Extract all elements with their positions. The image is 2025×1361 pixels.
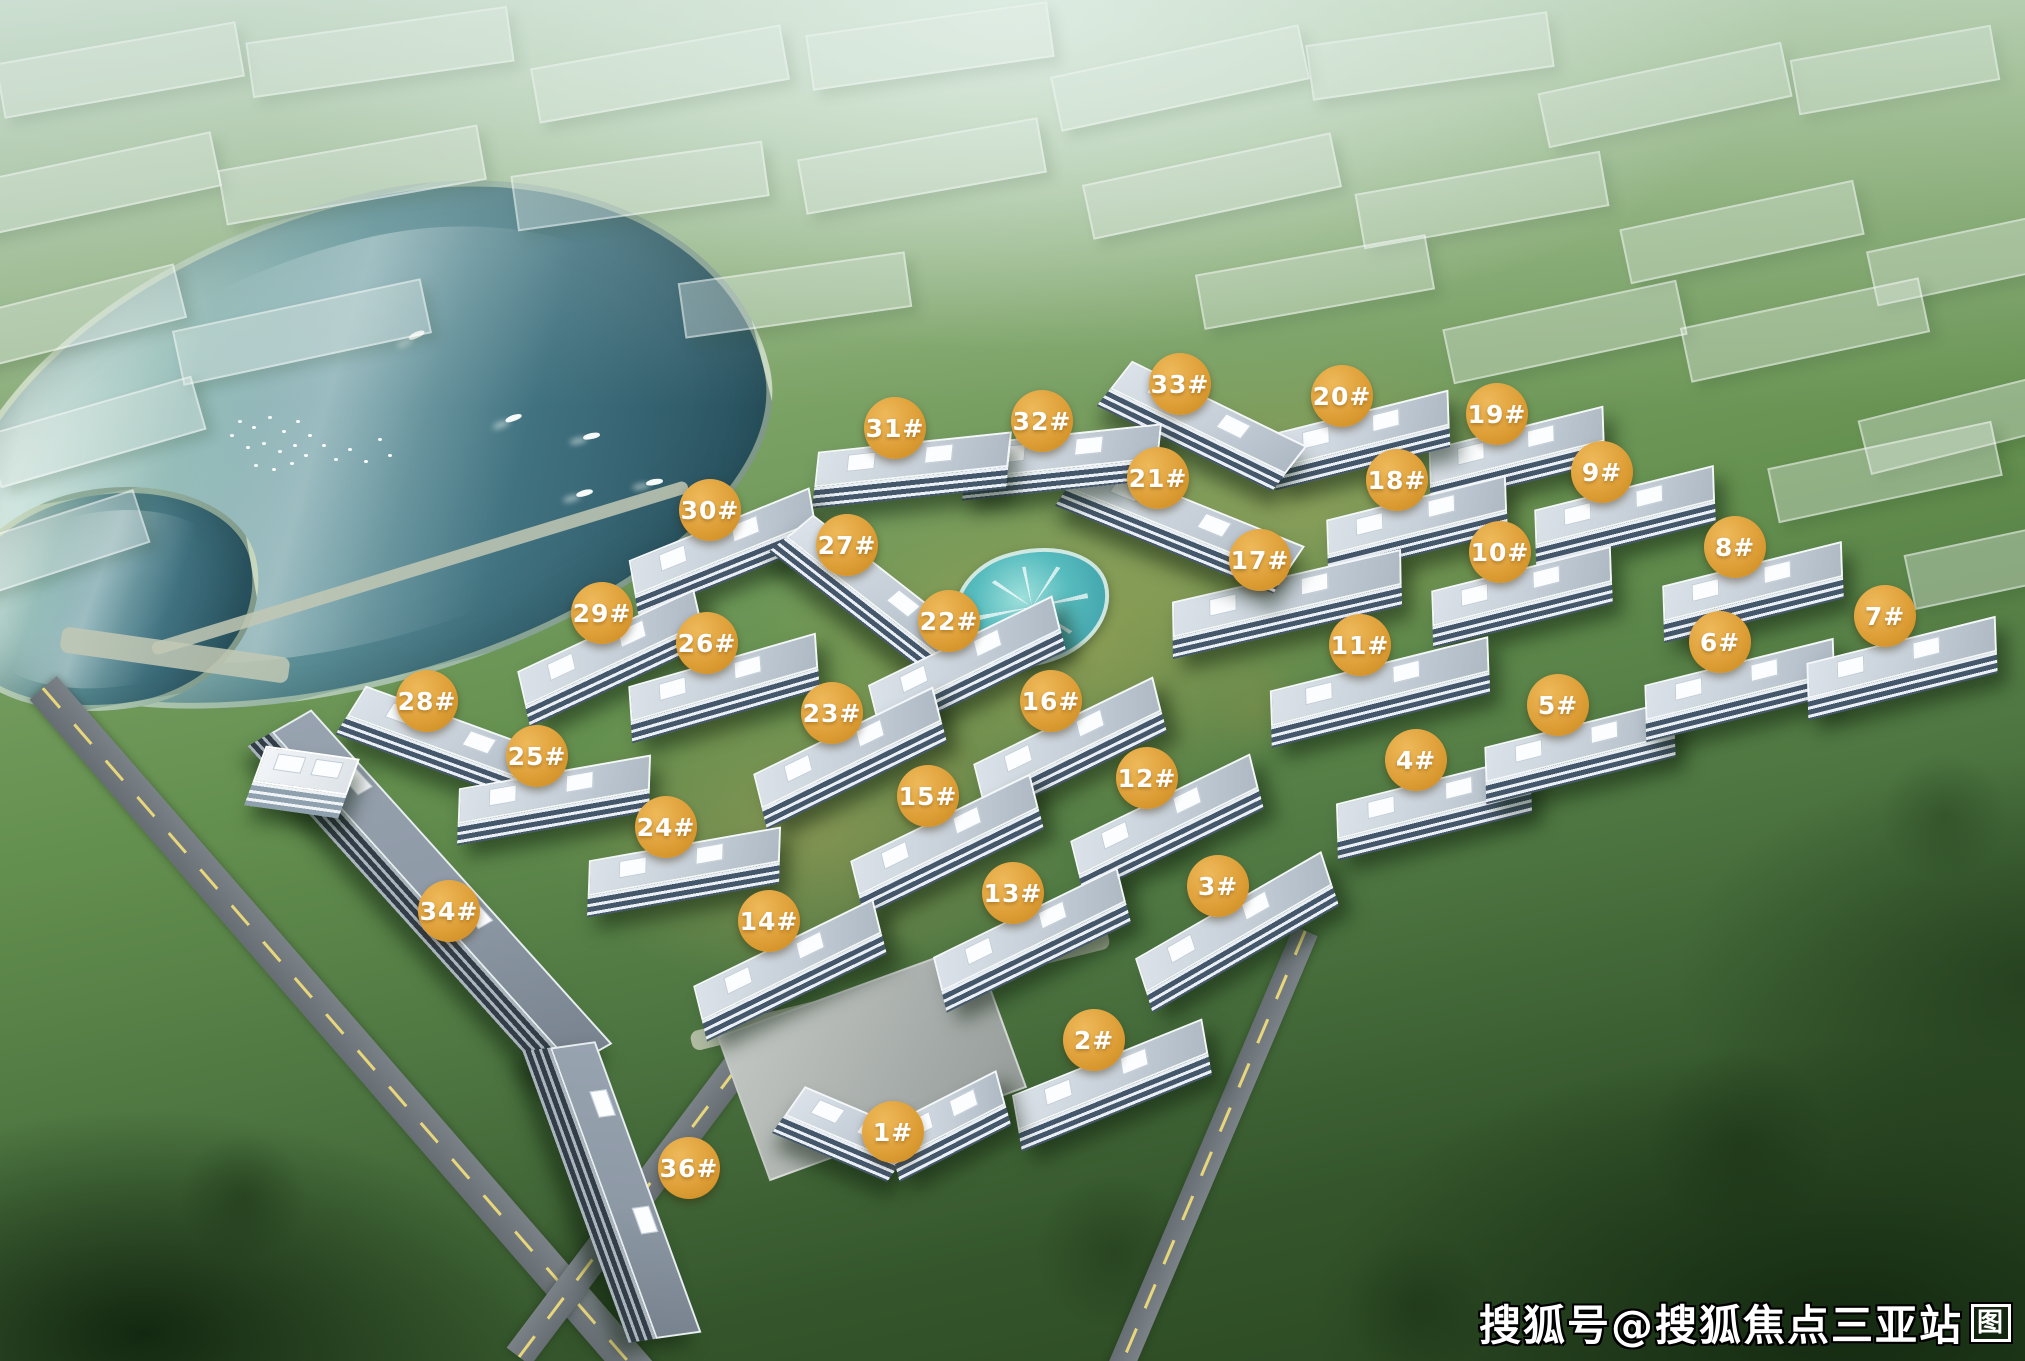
building-number-label: 4# (1396, 746, 1436, 775)
watermark-text: 搜狐号@搜狐焦点三亚站 (1479, 1292, 1963, 1353)
building-number-marker-16: 16# (1020, 670, 1082, 732)
future-phase-ghost-building (245, 6, 514, 98)
building-number-marker-23: 23# (801, 682, 863, 744)
building-number-marker-25: 25# (506, 725, 568, 787)
future-phase-ghost-building (1050, 24, 1310, 132)
building-number-label: 25# (508, 742, 567, 771)
building-number-marker-20: 20# (1311, 365, 1373, 427)
building-number-label: 15# (899, 782, 958, 811)
building-number-marker-27: 27# (816, 514, 878, 576)
building-number-label: 33# (1151, 370, 1210, 399)
building-number-label: 24# (637, 813, 696, 842)
watermark: 搜狐号@搜狐焦点三亚站 图 (1479, 1292, 2011, 1353)
rooftop-box (310, 759, 344, 779)
future-phase-ghost-building (0, 21, 245, 119)
building-number-label: 13# (984, 879, 1043, 908)
building-number-marker-8: 8# (1704, 516, 1766, 578)
building-number-marker-2: 2# (1063, 1009, 1125, 1071)
building-number-marker-5: 5# (1527, 674, 1589, 736)
road (1106, 926, 1317, 1361)
building-number-label: 11# (1331, 631, 1390, 660)
building-number-label: 14# (740, 907, 799, 936)
future-phase-ghost-building (797, 117, 1047, 215)
building-number-label: 3# (1198, 872, 1238, 901)
building-number-marker-30: 30# (679, 479, 741, 541)
future-phase-ghost-building (805, 1, 1054, 90)
rooftop-box (847, 452, 877, 472)
road-centerline (1117, 930, 1307, 1361)
future-phase-ghost-building (1680, 277, 1930, 383)
building-number-marker-32: 32# (1011, 390, 1073, 452)
building-number-label: 10# (1471, 538, 1530, 567)
future-phase-ghost-building (530, 24, 790, 123)
future-phase-ghost-building (1790, 25, 2001, 116)
future-phase-ghost-building (1355, 151, 1610, 249)
building-number-marker-12: 12# (1116, 747, 1178, 809)
building-number-marker-24: 24# (635, 796, 697, 858)
building-number-marker-13: 13# (982, 862, 1044, 924)
building-number-marker-7: 7# (1854, 585, 1916, 647)
building-number-label: 19# (1468, 400, 1527, 429)
building-number-label: 22# (920, 607, 979, 636)
building-number-label: 1# (873, 1118, 913, 1147)
building-number-marker-19: 19# (1466, 383, 1528, 445)
building-number-marker-28: 28# (396, 670, 458, 732)
building-number-label: 17# (1231, 546, 1290, 575)
building-number-marker-11: 11# (1329, 614, 1391, 676)
building-number-label: 8# (1715, 533, 1755, 562)
bird-flock-icon (238, 420, 242, 423)
future-phase-ghost-building (0, 131, 222, 239)
building-number-marker-15: 15# (897, 765, 959, 827)
building-number-label: 32# (1013, 407, 1072, 436)
building-number-label: 9# (1582, 458, 1622, 487)
future-phase-ghost-building (1082, 132, 1342, 240)
future-phase-ghost-building (1537, 42, 1792, 149)
building-number-label: 27# (818, 531, 877, 560)
building-number-marker-6: 6# (1689, 611, 1751, 673)
building-number-label: 12# (1118, 764, 1177, 793)
building-number-label: 5# (1538, 691, 1578, 720)
watermark-logo-icon: 图 (1971, 1304, 2011, 1342)
building-number-marker-26: 26# (676, 612, 738, 674)
building-number-label: 30# (681, 496, 740, 525)
future-phase-ghost-building (1442, 280, 1687, 384)
building-number-marker-34: 34# (418, 880, 480, 942)
future-phase-ghost-building (678, 251, 913, 338)
rooftop-box (924, 443, 954, 463)
building-number-label: 34# (420, 897, 479, 926)
future-phase-ghost-building (1904, 520, 2025, 610)
building-number-label: 2# (1074, 1026, 1114, 1055)
building-number-label: 36# (660, 1154, 719, 1183)
future-phase-ghost-building (1195, 234, 1435, 330)
building-number-marker-22: 22# (918, 590, 980, 652)
aerial-masterplan-rendering: 1#2#3#4#5#6#7#8#9#10#11#12#13#14#15#16#1… (0, 0, 2025, 1361)
building-number-marker-33: 33# (1149, 353, 1211, 415)
building-number-label: 28# (398, 687, 457, 716)
building-number-marker-14: 14# (738, 890, 800, 952)
building-number-marker-31: 31# (864, 397, 926, 459)
building-number-label: 26# (678, 629, 737, 658)
future-phase-ghost-building (1619, 180, 1864, 284)
building-number-marker-10: 10# (1469, 521, 1531, 583)
building-number-label: 20# (1313, 382, 1372, 411)
building-number-label: 29# (573, 599, 632, 628)
building-number-label: 16# (1022, 687, 1081, 716)
rooftop-box (1074, 435, 1104, 455)
building-number-marker-3: 3# (1187, 855, 1249, 917)
building-number-marker-18: 18# (1366, 449, 1428, 511)
building-number-marker-36: 36# (658, 1137, 720, 1199)
building-number-marker-29: 29# (571, 582, 633, 644)
building-number-label: 31# (866, 414, 925, 443)
future-phase-ghost-building (1305, 11, 1554, 100)
building-number-label: 21# (1129, 464, 1188, 493)
building-number-marker-4: 4# (1385, 729, 1447, 791)
building-number-label: 6# (1700, 628, 1740, 657)
building-number-marker-21: 21# (1127, 447, 1189, 509)
building-number-marker-1: 1# (862, 1101, 924, 1163)
building-number-marker-9: 9# (1571, 441, 1633, 503)
building-number-marker-17: 17# (1229, 529, 1291, 591)
building-number-label: 18# (1368, 466, 1427, 495)
building-number-label: 7# (1865, 602, 1905, 631)
building-number-label: 23# (803, 699, 862, 728)
